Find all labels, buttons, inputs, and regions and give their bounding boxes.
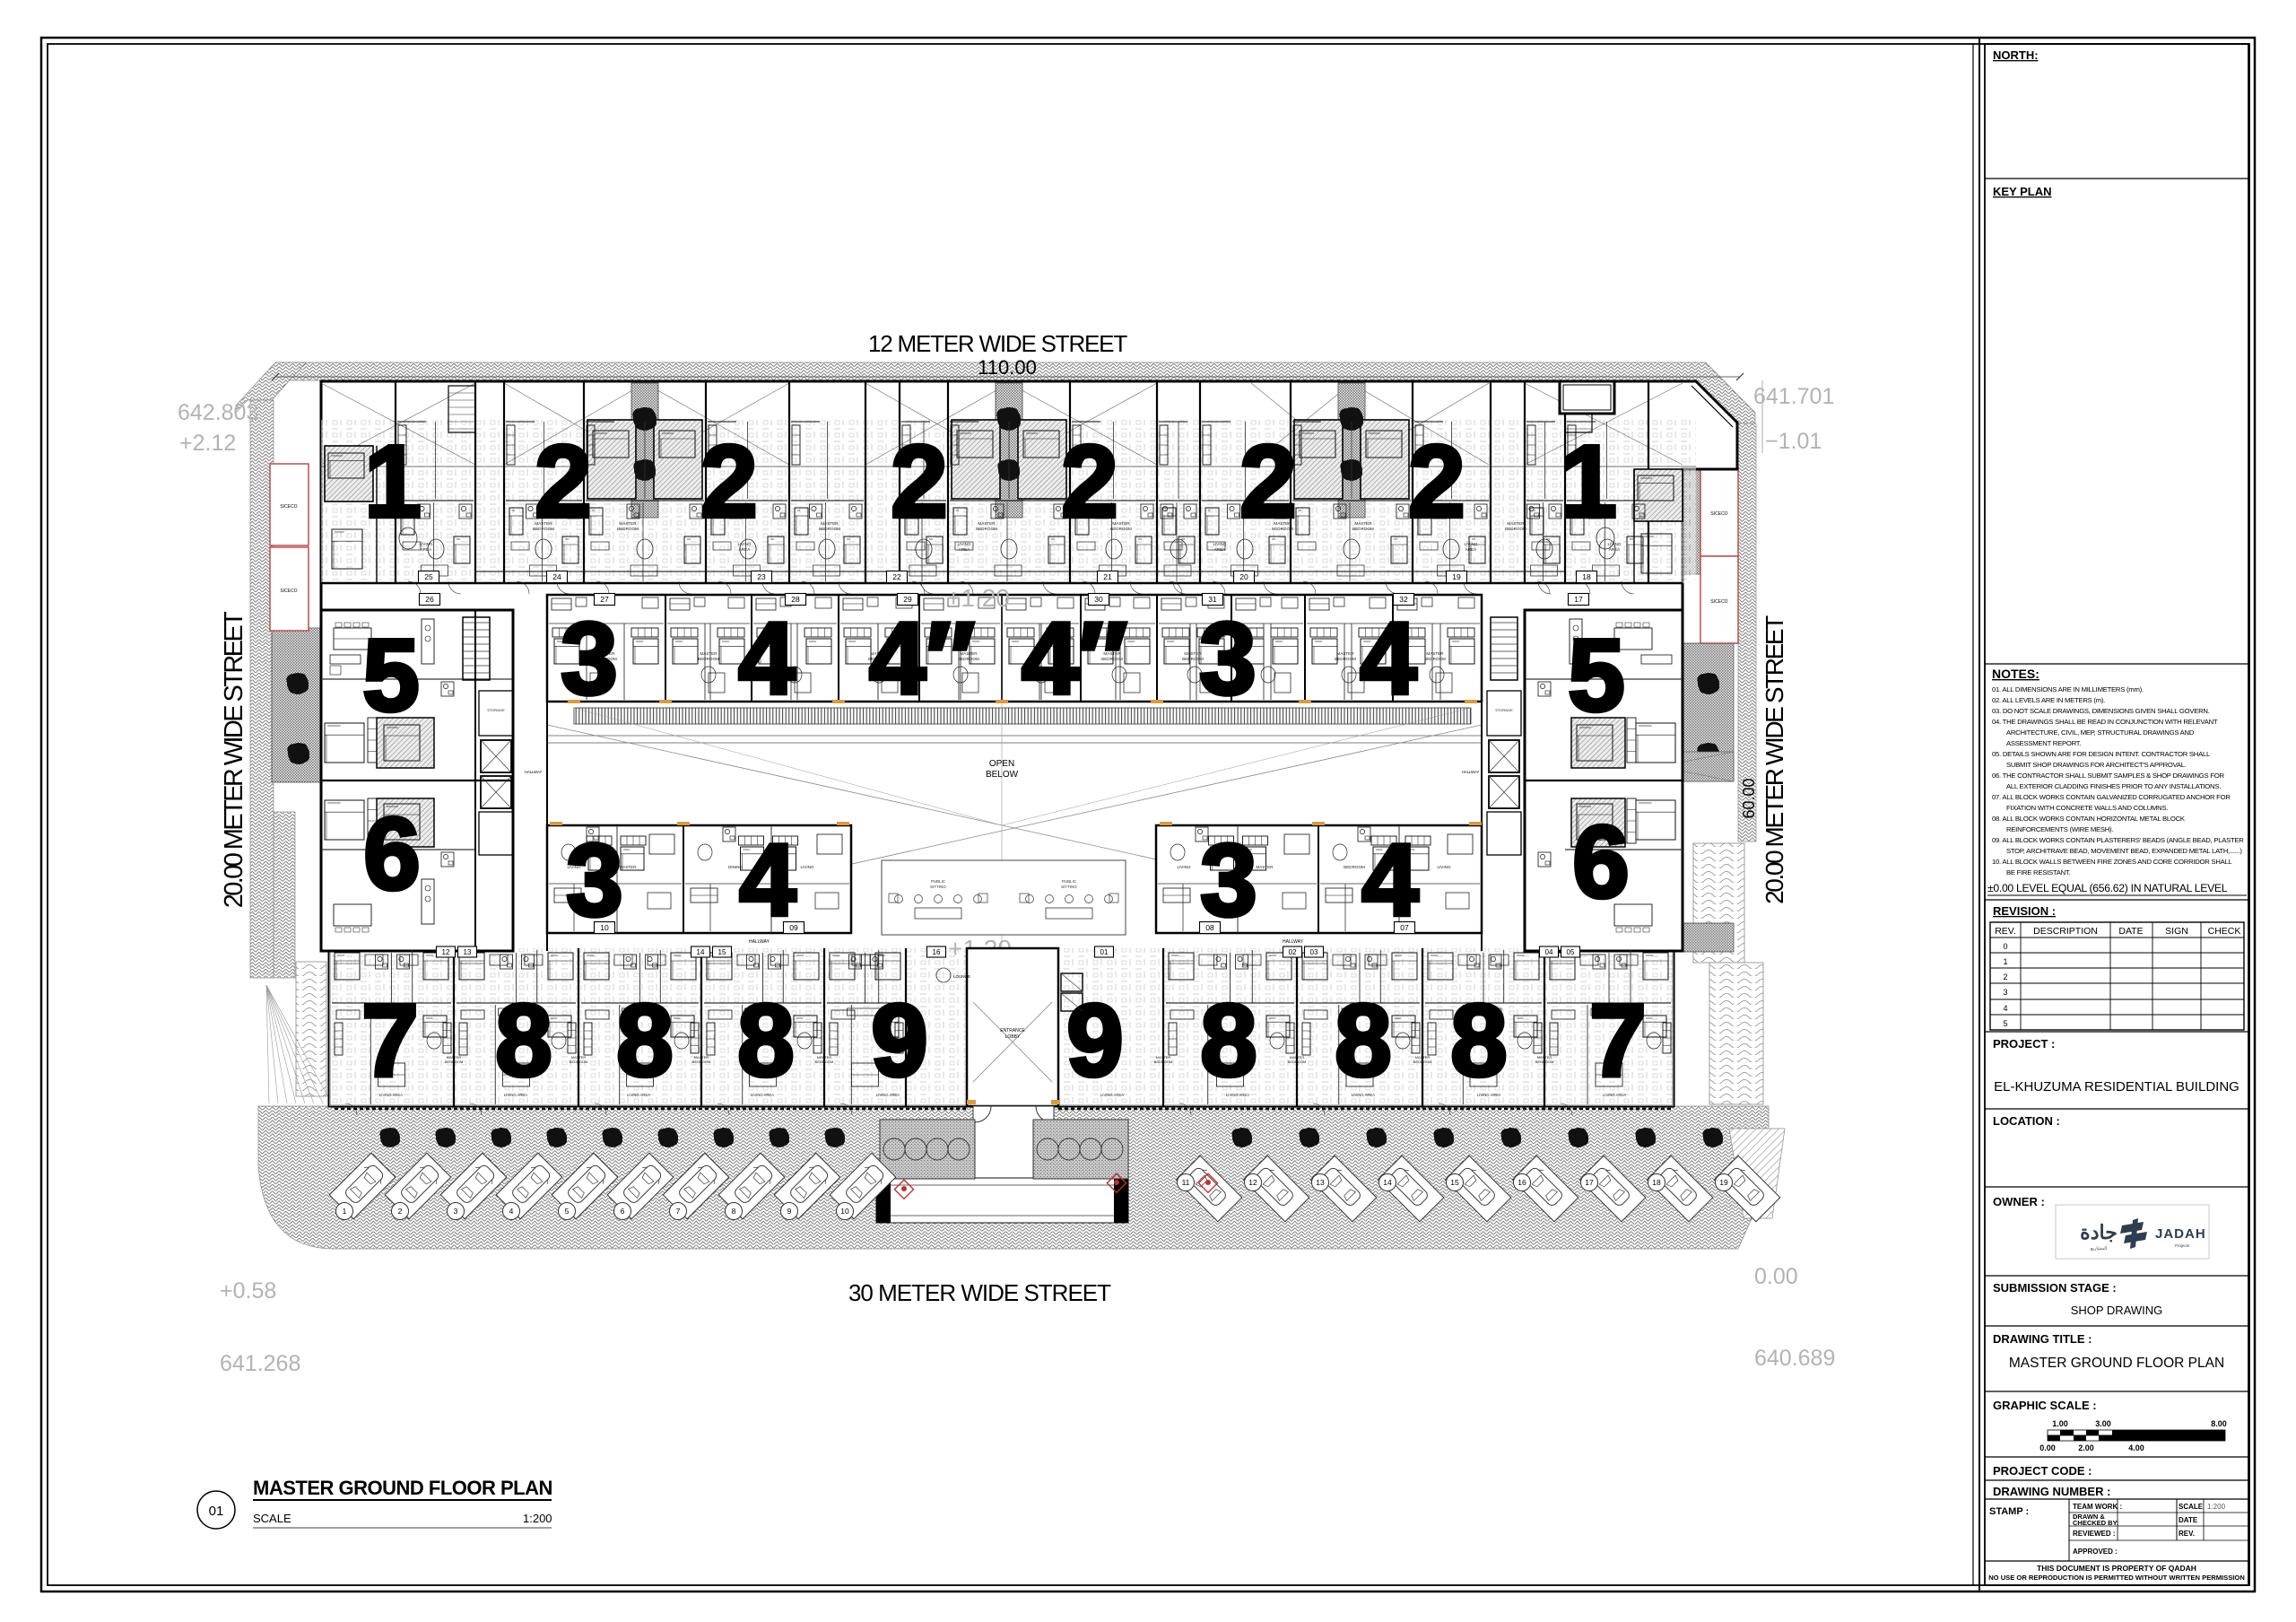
- svg-text:جادة: جادة: [2080, 1221, 2118, 1243]
- svg-text:MASTER GROUND FLOOR PLAN: MASTER GROUND FLOOR PLAN: [253, 1477, 552, 1499]
- svg-text:7: 7: [1589, 984, 1646, 1098]
- svg-text:REV.: REV.: [2179, 1530, 2195, 1538]
- svg-text:0.00: 0.00: [1754, 1264, 1798, 1289]
- svg-text:8: 8: [1335, 984, 1391, 1098]
- svg-text:ARCHITECTURE, CIVIL, MEP, STRU: ARCHITECTURE, CIVIL, MEP, STRUCTURAL DRA…: [2006, 728, 2195, 737]
- svg-text:PUBLIC: PUBLIC: [931, 879, 946, 884]
- svg-text:26: 26: [425, 595, 434, 604]
- svg-text:7: 7: [676, 1207, 681, 1216]
- svg-text:CHECKED BY:: CHECKED BY:: [2073, 1519, 2119, 1527]
- svg-text:07: 07: [1400, 923, 1409, 932]
- svg-text:NOTES:: NOTES:: [1992, 667, 2039, 681]
- svg-text:14: 14: [697, 948, 705, 956]
- svg-text:LIVING: LIVING: [957, 542, 970, 546]
- svg-text:25: 25: [424, 572, 433, 581]
- svg-text:1: 1: [2003, 957, 2007, 966]
- svg-text:STAMP :: STAMP :: [1989, 1506, 2029, 1517]
- svg-text:02. ALL LEVELS ARE IN METERS (: 02. ALL LEVELS ARE IN METERS (m).: [1992, 696, 2105, 704]
- svg-text:MASTER: MASTER: [821, 521, 839, 526]
- svg-text:LIVING: LIVING: [1607, 542, 1621, 546]
- svg-text:±0.00 LEVEL EQUAL (656.62) IN: ±0.00 LEVEL EQUAL (656.62) IN NATURAL LE…: [1987, 882, 2228, 894]
- svg-text:BEDROOM: BEDROOM: [1288, 1060, 1307, 1064]
- svg-text:8: 8: [1200, 984, 1257, 1098]
- svg-text:21: 21: [1103, 572, 1112, 581]
- svg-text:0.00: 0.00: [2039, 1443, 2056, 1452]
- svg-text:8.00: 8.00: [2211, 1419, 2227, 1428]
- svg-text:REVIEWED :: REVIEWED :: [2073, 1530, 2116, 1538]
- svg-text:SICECO: SICECO: [280, 589, 297, 594]
- svg-text:ALL EXTERIOR CLADDING FINISHES: ALL EXTERIOR CLADDING FINISHES PRIOR TO …: [2006, 782, 2221, 790]
- svg-text:BEDROOM: BEDROOM: [1154, 1060, 1173, 1064]
- svg-text:1:200: 1:200: [523, 1512, 552, 1525]
- svg-text:110.00: 110.00: [978, 356, 1037, 379]
- svg-text:20.00 METER WIDE STREET: 20.00 METER WIDE STREET: [220, 611, 248, 908]
- svg-text:SUBMIT SHOP DRAWINGS FOR ARCHI: SUBMIT SHOP DRAWINGS FOR ARCHITECT'S APP…: [2006, 761, 2187, 769]
- svg-text:30 METER WIDE STREET: 30 METER WIDE STREET: [848, 1279, 1111, 1306]
- svg-text:KEY PLAN: KEY PLAN: [1993, 185, 2052, 198]
- svg-text:BEDROOM: BEDROOM: [570, 1060, 588, 1064]
- svg-text:60.00: 60.00: [1740, 778, 1758, 818]
- svg-text:03. DO NOT SCALE DRAWINGS, DIM: 03. DO NOT SCALE DRAWINGS, DIMENSIONS GI…: [1992, 707, 2210, 715]
- svg-text:6: 6: [621, 1207, 625, 1216]
- svg-text:MASTER: MASTER: [1256, 865, 1274, 869]
- svg-text:MASTER: MASTER: [1507, 521, 1525, 526]
- svg-text:2: 2: [1239, 425, 1296, 539]
- svg-text:FIXATION WITH CONCRETE WALLS A: FIXATION WITH CONCRETE WALLS AND COLUMNS…: [2006, 804, 2168, 812]
- svg-text:REV.: REV.: [1995, 926, 2016, 937]
- svg-text:SUBMISSION STAGE :: SUBMISSION STAGE :: [1993, 1281, 2117, 1295]
- svg-text:SICECO: SICECO: [1710, 599, 1727, 605]
- svg-text:MASTER: MASTER: [700, 651, 717, 656]
- svg-text:SCALE: SCALE: [253, 1512, 291, 1525]
- svg-text:3: 3: [454, 1207, 458, 1216]
- svg-text:18: 18: [1582, 572, 1591, 581]
- svg-text:BEDROOM: BEDROOM: [1535, 1060, 1554, 1064]
- svg-text:LIVING: LIVING: [1177, 865, 1190, 869]
- svg-text:2: 2: [891, 425, 947, 539]
- svg-text:AREA: AREA: [739, 547, 751, 552]
- svg-text:2: 2: [398, 1207, 403, 1216]
- svg-text:LIVING: LIVING: [419, 542, 432, 546]
- svg-text:BEDROOM: BEDROOM: [445, 1060, 464, 1064]
- svg-text:0: 0: [2003, 942, 2007, 951]
- svg-text:+0.58: +0.58: [220, 1278, 276, 1304]
- svg-text:Projects: Projects: [2175, 1243, 2190, 1248]
- svg-text:HALLWAY: HALLWAY: [1462, 770, 1479, 774]
- svg-text:01: 01: [1100, 948, 1109, 956]
- svg-text:PUBLIC: PUBLIC: [1062, 879, 1077, 884]
- svg-text:MASTER: MASTER: [1354, 521, 1372, 526]
- svg-text:13: 13: [464, 948, 472, 956]
- svg-text:1: 1: [343, 1207, 347, 1216]
- svg-text:APPROVED :: APPROVED :: [2073, 1548, 2118, 1556]
- svg-text:NO USE OR REPRODUCTION IS PERM: NO USE OR REPRODUCTION IS PERMITTED WITH…: [1988, 1574, 2245, 1582]
- svg-text:16: 16: [1518, 1178, 1526, 1187]
- svg-text:+1.20: +1.20: [946, 584, 1010, 612]
- svg-text:1: 1: [1560, 425, 1616, 539]
- svg-text:641.701: 641.701: [1753, 384, 1834, 409]
- svg-text:2: 2: [700, 425, 757, 539]
- svg-text:16: 16: [933, 948, 941, 956]
- svg-text:PROJECT CODE :: PROJECT CODE :: [1993, 1464, 2092, 1478]
- svg-text:DRAWING NUMBER :: DRAWING NUMBER :: [1993, 1485, 2110, 1498]
- svg-text:8: 8: [1450, 984, 1507, 1098]
- svg-text:7: 7: [361, 984, 418, 1098]
- svg-text:−1.01: −1.01: [1765, 429, 1822, 454]
- svg-text:EL-KHUZUMA RESIDENTIAL BUILDIN: EL-KHUZUMA RESIDENTIAL BUILDING: [1994, 1079, 2239, 1094]
- svg-text:5: 5: [362, 619, 419, 733]
- svg-text:2: 2: [1408, 425, 1465, 539]
- svg-text:TEAM WORK :: TEAM WORK :: [2073, 1503, 2122, 1511]
- svg-text:09. ALL BLOCK WORKS CONTAIN PL: 09. ALL BLOCK WORKS CONTAIN PLASTERERS' …: [1992, 836, 2244, 844]
- svg-text:4: 4: [1360, 602, 1416, 716]
- svg-text:LOUNGE: LOUNGE: [953, 974, 970, 979]
- svg-text:2: 2: [1061, 425, 1118, 539]
- svg-text:4″: 4″: [1022, 602, 1127, 716]
- svg-text:08: 08: [1205, 923, 1214, 932]
- svg-text:03: 03: [1310, 948, 1318, 956]
- svg-text:01. ALL DIMENSIONS ARE IN MILL: 01. ALL DIMENSIONS ARE IN MILLIMETERS (m…: [1992, 685, 2144, 693]
- svg-text:2.00: 2.00: [2078, 1443, 2094, 1452]
- svg-text:LIVING: LIVING: [737, 542, 751, 546]
- svg-text:9: 9: [1066, 984, 1123, 1098]
- svg-text:NORTH:: NORTH:: [1993, 48, 2039, 62]
- svg-text:05. DETAILS SHOWN ARE FOR DESI: 05. DETAILS SHOWN ARE FOR DESIGN INTENT.…: [1992, 750, 2211, 758]
- svg-text:BEDROOM: BEDROOM: [692, 1060, 711, 1064]
- svg-text:SHOP DRAWING: SHOP DRAWING: [2071, 1304, 2163, 1317]
- svg-text:15: 15: [718, 948, 726, 956]
- svg-text:3.00: 3.00: [2095, 1419, 2111, 1428]
- svg-text:OWNER :: OWNER :: [1993, 1195, 2045, 1208]
- svg-text:AREA: AREA: [1214, 547, 1226, 552]
- svg-text:BELOW: BELOW: [986, 770, 1019, 780]
- svg-text:DATE: DATE: [2179, 1516, 2198, 1524]
- svg-text:12 METER WIDE STREET: 12 METER WIDE STREET: [868, 330, 1127, 357]
- svg-text:LIVING: LIVING: [1213, 542, 1226, 546]
- svg-text:SCALE: SCALE: [2179, 1503, 2204, 1511]
- svg-text:BEDROOM: BEDROOM: [698, 657, 719, 661]
- svg-text:MASTER: MASTER: [619, 521, 637, 526]
- svg-text:9: 9: [871, 984, 927, 1098]
- svg-text:SICECO: SICECO: [1710, 511, 1727, 517]
- svg-text:MASTER GROUND FLOOR PLAN: MASTER GROUND FLOOR PLAN: [2009, 1356, 2224, 1371]
- svg-text:MASTER: MASTER: [1336, 651, 1354, 656]
- svg-text:09: 09: [789, 923, 798, 932]
- svg-text:GRAPHIC SCALE :: GRAPHIC SCALE :: [1993, 1399, 2097, 1412]
- svg-text:8: 8: [495, 984, 552, 1098]
- svg-text:4: 4: [509, 1207, 514, 1216]
- svg-text:BEDROOM: BEDROOM: [976, 527, 997, 531]
- svg-text:LIVING: LIVING: [800, 865, 813, 869]
- svg-text:2: 2: [2003, 972, 2007, 981]
- svg-text:3: 3: [561, 602, 617, 716]
- svg-text:9: 9: [787, 1207, 792, 1216]
- svg-text:4: 4: [738, 602, 795, 716]
- svg-text:SICECO: SICECO: [280, 504, 297, 510]
- svg-text:HALLWAY: HALLWAY: [1283, 939, 1304, 945]
- svg-text:LIVING: LIVING: [1437, 865, 1450, 869]
- svg-text:23: 23: [757, 572, 766, 581]
- svg-text:LOBBY: LOBBY: [1005, 1034, 1021, 1040]
- svg-text:ASSESSMENT REPORT.: ASSESSMENT REPORT.: [2006, 739, 2081, 747]
- svg-text:AREA: AREA: [1609, 547, 1621, 552]
- svg-text:15: 15: [1450, 1178, 1459, 1187]
- svg-text:17: 17: [1574, 595, 1583, 604]
- svg-text:17: 17: [1585, 1178, 1594, 1187]
- svg-text:13: 13: [1316, 1178, 1325, 1187]
- svg-text:MASTER: MASTER: [978, 521, 996, 526]
- svg-text:REVISION :: REVISION :: [1993, 904, 2056, 918]
- svg-text:6: 6: [1572, 806, 1629, 920]
- svg-text:4.00: 4.00: [2128, 1443, 2144, 1452]
- svg-text:10. ALL BLOCK WALLS BETWEEN FI: 10. ALL BLOCK WALLS BETWEEN FIRE ZONES A…: [1992, 858, 2233, 866]
- svg-text:3: 3: [1200, 824, 1257, 937]
- svg-text:BEDROOM: BEDROOM: [1424, 657, 1446, 661]
- svg-text:05: 05: [1567, 948, 1575, 956]
- svg-text:14: 14: [1383, 1178, 1392, 1187]
- svg-text:12: 12: [1248, 1178, 1257, 1187]
- svg-text:JADAH: JADAH: [2155, 1226, 2206, 1242]
- svg-text:AREA: AREA: [421, 547, 432, 552]
- svg-text:STORAGE: STORAGE: [487, 708, 505, 712]
- svg-text:10: 10: [600, 923, 609, 932]
- svg-text:المشاريع: المشاريع: [2091, 1246, 2107, 1251]
- svg-text:DESCRIPTION: DESCRIPTION: [2033, 926, 2098, 937]
- svg-text:PROJECT :: PROJECT :: [1993, 1037, 2055, 1051]
- svg-text:3: 3: [566, 824, 622, 937]
- svg-text:STORAGE: STORAGE: [1495, 708, 1513, 712]
- svg-text:19: 19: [1452, 572, 1461, 581]
- svg-text:24: 24: [552, 572, 561, 581]
- svg-text:642.803: 642.803: [178, 400, 258, 425]
- svg-text:4″: 4″: [869, 602, 975, 716]
- svg-text:BEDROOM: BEDROOM: [1505, 527, 1526, 531]
- svg-text:BEDROOM: BEDROOM: [617, 527, 639, 531]
- svg-text:8: 8: [737, 984, 794, 1098]
- svg-text:AREA: AREA: [1465, 547, 1477, 552]
- svg-text:8: 8: [732, 1207, 736, 1216]
- svg-text:4: 4: [1361, 824, 1418, 937]
- svg-text:20.00 METER WIDE STREET: 20.00 METER WIDE STREET: [1761, 615, 1788, 904]
- svg-text:HALLWAY: HALLWAY: [525, 770, 542, 774]
- svg-text:BEDROOM: BEDROOM: [1413, 1060, 1432, 1064]
- svg-text:07. ALL BLOCK WORKS CONTAIN GA: 07. ALL BLOCK WORKS CONTAIN GALVANIZED C…: [1992, 793, 2231, 801]
- svg-text:12: 12: [442, 948, 450, 956]
- svg-text:LOCATION :: LOCATION :: [1993, 1114, 2060, 1128]
- svg-text:AREA: AREA: [959, 547, 970, 552]
- svg-text:STOP, ARCHITRAVE BEAD, MOVEMEN: STOP, ARCHITRAVE BEAD, MOVEMENT BEAD, EX…: [2006, 847, 2242, 855]
- svg-text:04. THE DRAWINGS SHALL BE READ: 04. THE DRAWINGS SHALL BE READ IN CONJUN…: [1992, 718, 2218, 726]
- svg-text:10: 10: [840, 1207, 849, 1216]
- svg-text:01: 01: [209, 1504, 224, 1519]
- svg-text:02: 02: [1289, 948, 1297, 956]
- svg-text:6: 6: [363, 798, 420, 911]
- svg-text:SITTING: SITTING: [930, 885, 946, 889]
- svg-text:4: 4: [739, 824, 796, 937]
- svg-text:MASTER: MASTER: [1426, 651, 1444, 656]
- svg-text:SITTING: SITTING: [1061, 885, 1077, 889]
- svg-text:THIS DOCUMENT IS PROPERTY OF Q: THIS DOCUMENT IS PROPERTY OF QADAH: [2037, 1564, 2196, 1573]
- svg-text:+2.12: +2.12: [179, 431, 236, 456]
- svg-text:8: 8: [616, 984, 673, 1098]
- svg-text:BEDROOM: BEDROOM: [819, 527, 840, 531]
- svg-text:11: 11: [1182, 1178, 1190, 1187]
- svg-text:BE FIRE RESISTANT.: BE FIRE RESISTANT.: [2006, 868, 2071, 876]
- svg-text:3: 3: [1199, 602, 1256, 716]
- svg-text:5: 5: [1568, 619, 1624, 733]
- svg-text:20: 20: [1239, 572, 1248, 581]
- svg-text:4: 4: [2003, 1004, 2007, 1013]
- svg-text:5: 5: [565, 1207, 570, 1216]
- svg-text:OPEN: OPEN: [989, 759, 1014, 769]
- svg-text:1: 1: [364, 425, 421, 539]
- svg-text:640.689: 640.689: [1754, 1346, 1835, 1371]
- svg-text:1.00: 1.00: [2052, 1419, 2068, 1428]
- svg-text:04: 04: [1545, 948, 1553, 956]
- svg-text:DATE: DATE: [2118, 926, 2143, 937]
- svg-text:5: 5: [2003, 1019, 2007, 1028]
- svg-text:LIVING: LIVING: [1464, 542, 1477, 546]
- svg-text:BEDROOM: BEDROOM: [815, 1060, 834, 1064]
- svg-text:22: 22: [892, 572, 901, 581]
- svg-text:REINFORCEMENTS (WIRE MESH).: REINFORCEMENTS (WIRE MESH).: [2006, 825, 2113, 833]
- svg-text:CHECK: CHECK: [2208, 926, 2241, 937]
- svg-text:ENTRANCE: ENTRANCE: [1000, 1028, 1025, 1033]
- svg-text:DRAWING TITLE :: DRAWING TITLE :: [1993, 1332, 2092, 1346]
- svg-text:2: 2: [535, 425, 591, 539]
- svg-text:06. THE CONTRACTOR SHALL SUBM: 06. THE CONTRACTOR SHALL SUBMIT SAMPLES …: [1992, 772, 2224, 780]
- svg-text:19: 19: [1719, 1178, 1728, 1187]
- svg-text:1:200: 1:200: [2207, 1503, 2226, 1511]
- svg-text:BEDROOM: BEDROOM: [1335, 657, 1356, 661]
- svg-text:18: 18: [1652, 1178, 1661, 1187]
- svg-text:08. ALL BLOCK WORKS CONTAIN HO: 08. ALL BLOCK WORKS CONTAIN HORIZONTAL M…: [1992, 815, 2186, 823]
- svg-text:SIGN: SIGN: [2165, 926, 2188, 937]
- svg-text:HALLWAY: HALLWAY: [749, 939, 770, 945]
- svg-text:BEDROOM: BEDROOM: [1352, 527, 1374, 531]
- svg-text:3: 3: [2003, 988, 2007, 997]
- svg-text:641.268: 641.268: [220, 1351, 300, 1376]
